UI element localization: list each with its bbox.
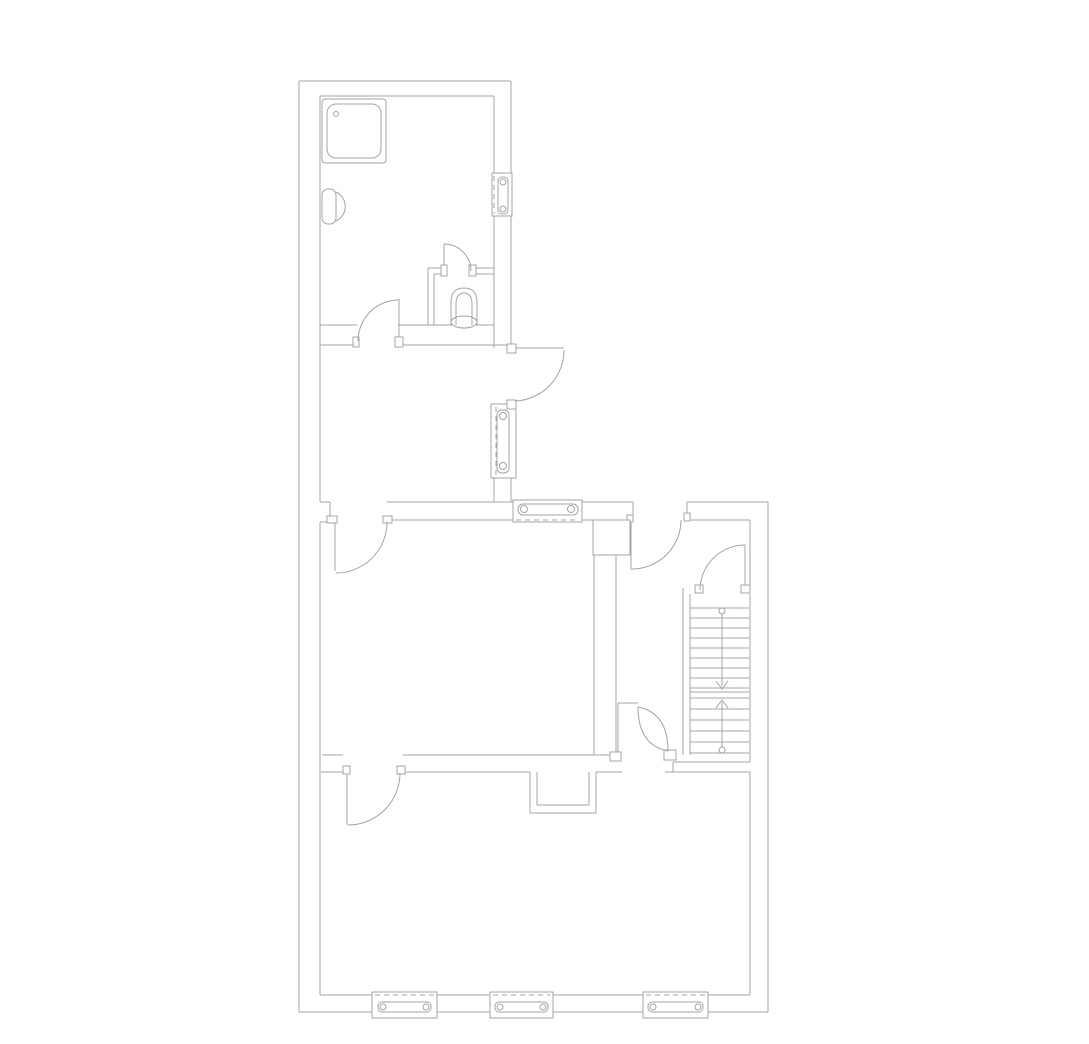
kitchen-door-arc xyxy=(336,522,387,573)
door-jamb xyxy=(397,766,405,774)
door-jamb xyxy=(507,344,516,353)
sash-pull xyxy=(650,1004,656,1010)
sash-pull xyxy=(380,1004,386,1010)
sink-bowl xyxy=(336,192,345,221)
understair-door-swing xyxy=(638,707,668,751)
bathroom-door-arc xyxy=(358,300,399,341)
sash-pull xyxy=(423,1004,429,1010)
stair-newel xyxy=(719,747,725,753)
door-jamb xyxy=(383,516,392,523)
sash-pull xyxy=(497,1004,503,1010)
door-jamb xyxy=(327,516,337,523)
sash-pull xyxy=(500,206,506,212)
door-jamb xyxy=(507,400,516,409)
wc-door-arc xyxy=(444,244,471,271)
floorplan-page xyxy=(0,0,1089,1044)
side-door-arc xyxy=(515,350,564,401)
door-jamb xyxy=(741,585,750,593)
sash-pull xyxy=(521,506,528,513)
door-jamb xyxy=(395,337,403,347)
shower-drain xyxy=(334,112,339,117)
living-door-arc xyxy=(348,773,400,825)
sash-pull xyxy=(500,463,507,470)
sash-pull xyxy=(568,506,575,513)
door-jamb xyxy=(441,265,447,276)
door-jamb xyxy=(469,265,476,276)
sash-pull xyxy=(500,413,507,420)
door-jamb xyxy=(664,750,676,760)
toilet-base xyxy=(451,316,477,328)
sash-pull xyxy=(500,179,506,185)
door-jamb xyxy=(695,585,703,593)
sash-pull xyxy=(695,1004,701,1010)
door-jamb xyxy=(343,766,350,774)
sink-pedestal xyxy=(322,189,336,224)
door-jamb xyxy=(610,752,621,761)
wall-jog xyxy=(593,520,630,555)
door-jamb xyxy=(684,513,690,521)
stair-door-arc xyxy=(700,545,745,590)
stair-newel xyxy=(719,608,725,614)
floorplan-drawing xyxy=(0,0,1089,1044)
front-door-arc xyxy=(632,520,681,569)
sash-pull xyxy=(540,1004,546,1010)
